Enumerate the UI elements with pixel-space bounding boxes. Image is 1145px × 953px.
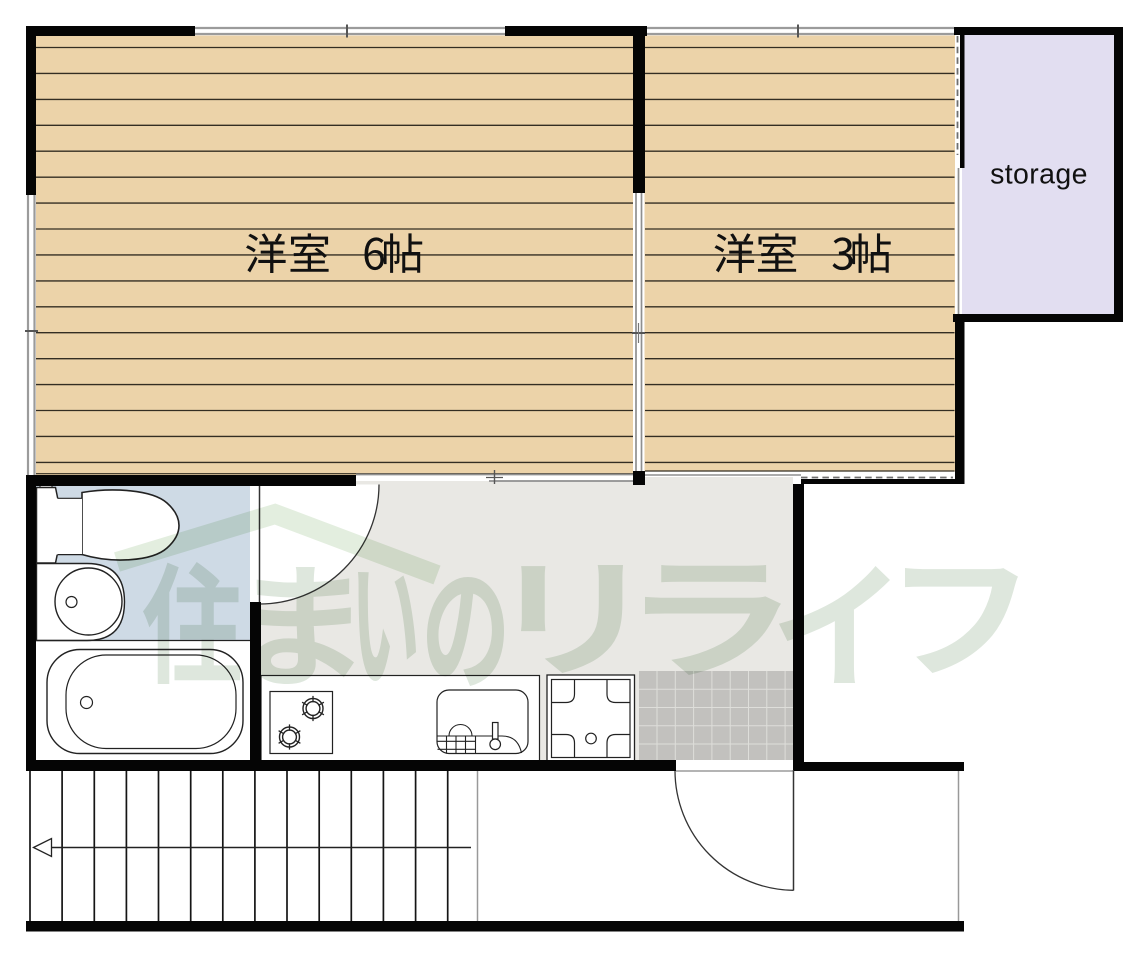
svg-text:storage: storage bbox=[990, 159, 1088, 191]
